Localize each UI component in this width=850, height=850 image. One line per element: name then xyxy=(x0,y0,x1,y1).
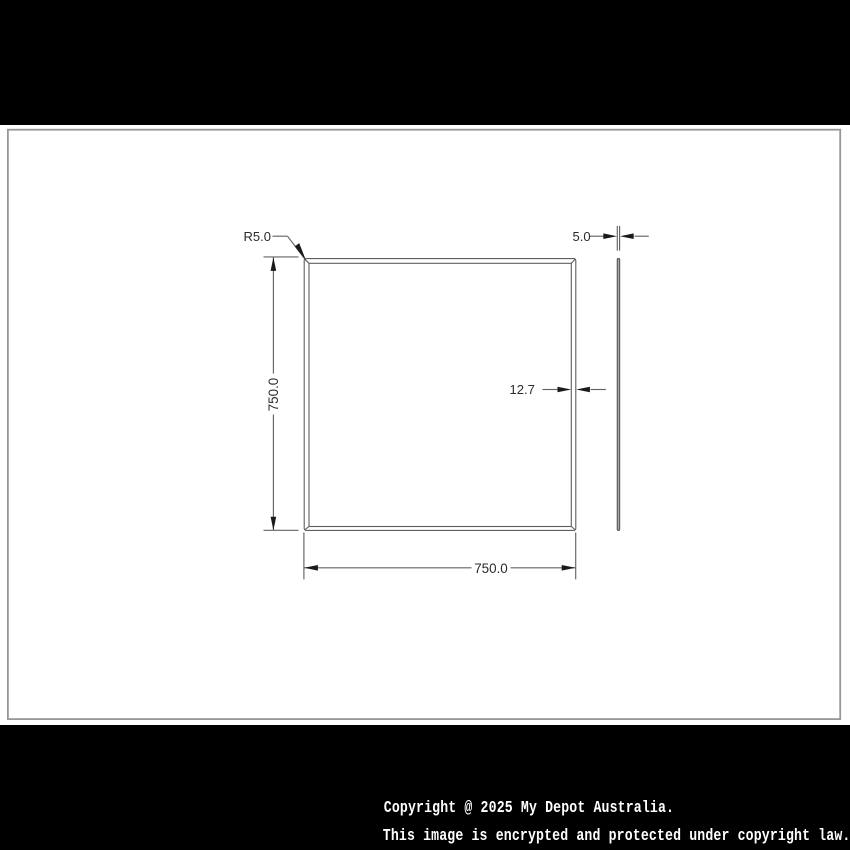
svg-text:12.7: 12.7 xyxy=(510,382,535,397)
svg-text:R5.0: R5.0 xyxy=(244,229,271,244)
svg-text:750.0: 750.0 xyxy=(474,561,508,576)
svg-text:5.0: 5.0 xyxy=(573,229,591,244)
svg-text:750.0: 750.0 xyxy=(266,378,281,412)
